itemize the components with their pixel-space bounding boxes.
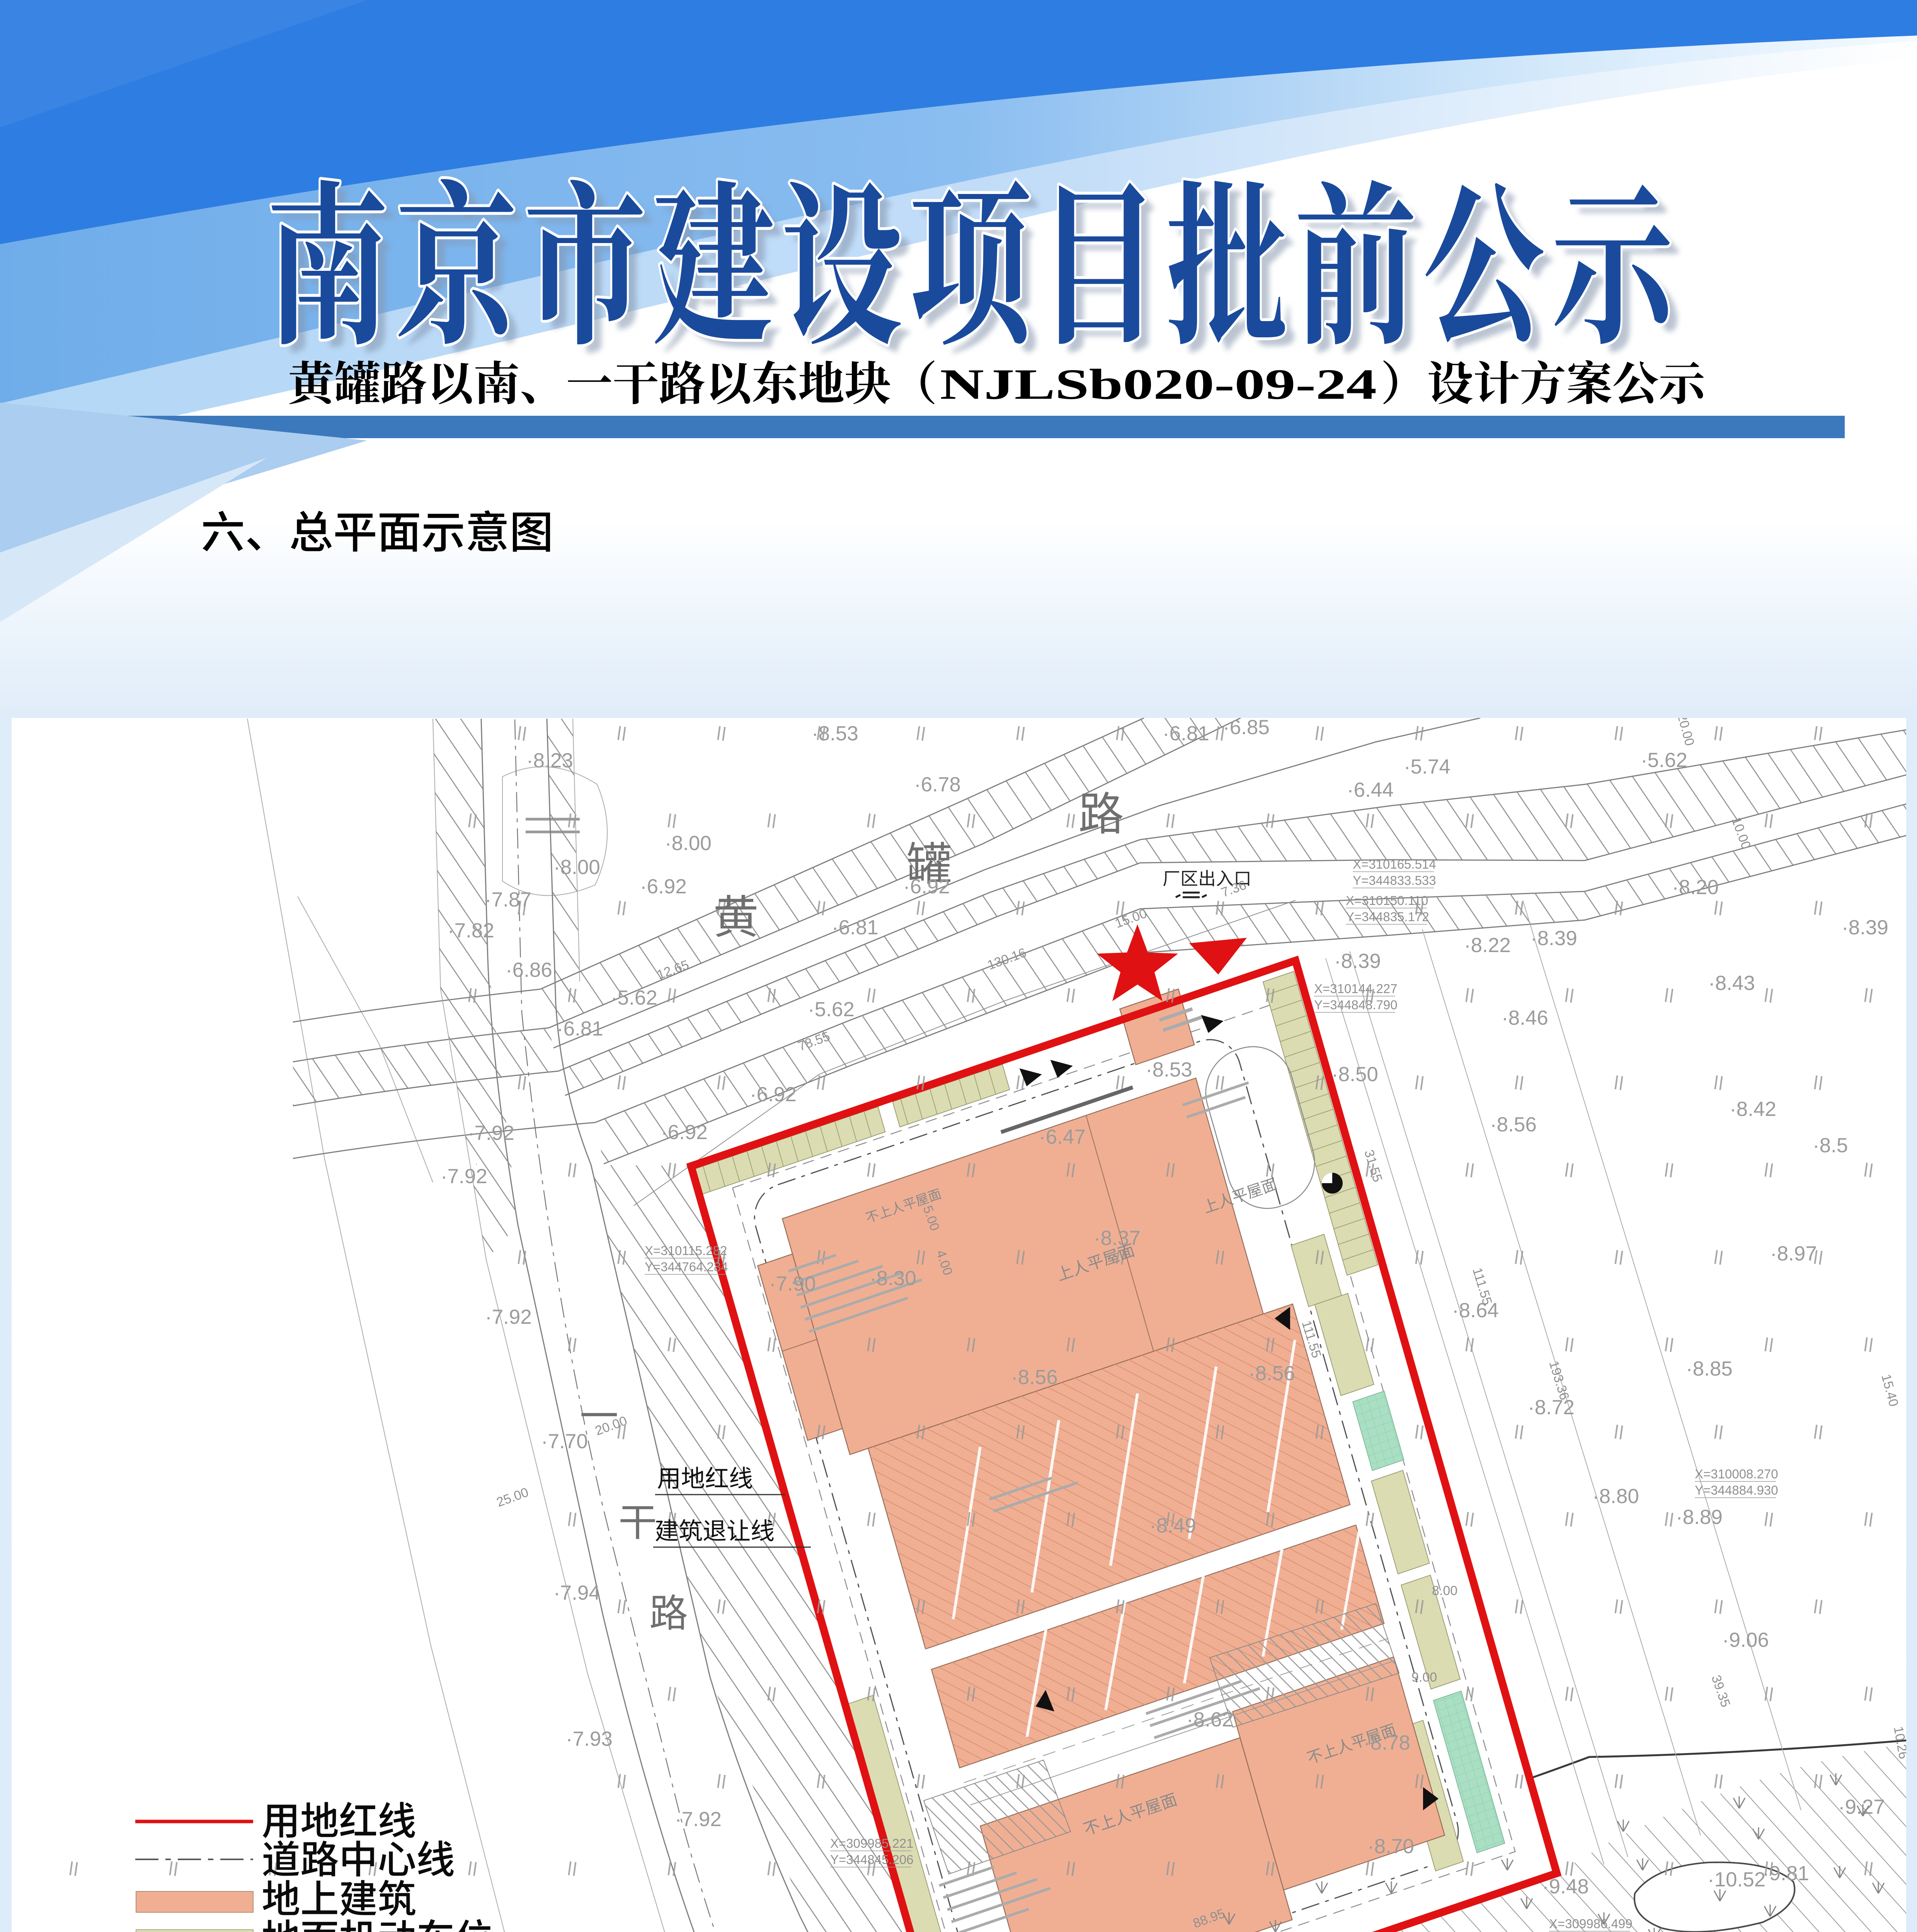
svg-text:8.00: 8.00: [1432, 1583, 1457, 1598]
svg-text:·5.74: ·5.74: [1404, 755, 1451, 778]
svg-text:·6.92: ·6.92: [661, 1121, 708, 1144]
svg-text:·8.5: ·8.5: [1813, 1134, 1848, 1157]
svg-text:Y=344845.206: Y=344845.206: [830, 1852, 914, 1867]
svg-text:·9.27: ·9.27: [1838, 1796, 1885, 1818]
svg-text:·8.97: ·8.97: [1770, 1242, 1817, 1265]
svg-text:·8.70: ·8.70: [1367, 1835, 1414, 1858]
svg-text:·8.89: ·8.89: [1676, 1506, 1723, 1529]
svg-text:·6.81: ·6.81: [832, 916, 878, 939]
svg-text:·9.06: ·9.06: [1722, 1629, 1769, 1651]
svg-text:·8.00: ·8.00: [665, 832, 712, 855]
svg-text:X=309986.499: X=309986.499: [1549, 1917, 1633, 1931]
svg-text:·7.92: ·7.92: [675, 1808, 722, 1831]
svg-text:·8.62: ·8.62: [1187, 1708, 1233, 1731]
svg-text:·6.81: ·6.81: [1163, 722, 1209, 745]
svg-text:·8.43: ·8.43: [1708, 972, 1755, 995]
svg-text:·8.80: ·8.80: [1592, 1485, 1639, 1508]
svg-text:·6.92: ·6.92: [640, 875, 687, 898]
svg-text:·5.62: ·5.62: [808, 998, 855, 1021]
svg-text:·7.82: ·7.82: [448, 919, 494, 942]
svg-text:·6.92: ·6.92: [750, 1083, 797, 1106]
svg-text:Y=344884.930: Y=344884.930: [1695, 1483, 1778, 1497]
svg-text:·6.78: ·6.78: [914, 773, 961, 796]
svg-text:·8.46: ·8.46: [1502, 1007, 1548, 1029]
svg-text:·10.52: ·10.52: [1708, 1868, 1765, 1891]
svg-text:·8.23: ·8.23: [526, 749, 573, 772]
svg-text:9.00: 9.00: [1411, 1670, 1437, 1685]
svg-text:Y=344833.533: Y=344833.533: [1353, 873, 1436, 888]
svg-text:·6.92: ·6.92: [903, 875, 950, 898]
svg-text:·9.48: ·9.48: [1542, 1875, 1589, 1898]
svg-text:·7.92: ·7.92: [441, 1165, 487, 1188]
svg-text:·7.92: ·7.92: [468, 1122, 514, 1145]
svg-text:·7.94: ·7.94: [553, 1582, 600, 1604]
svg-text:·6.85: ·6.85: [1223, 716, 1270, 739]
svg-text:Y=344848.790: Y=344848.790: [1314, 998, 1398, 1012]
svg-text:·8.56: ·8.56: [1490, 1113, 1537, 1136]
svg-text:X=309985.221: X=309985.221: [830, 1836, 914, 1850]
svg-text:Y=344835.172: Y=344835.172: [1346, 910, 1429, 924]
svg-text:X=310144.227: X=310144.227: [1314, 981, 1398, 996]
svg-text:·8.53: ·8.53: [812, 722, 858, 745]
svg-text:X=310008.270: X=310008.270: [1695, 1467, 1778, 1481]
svg-text:·6.86: ·6.86: [506, 959, 552, 981]
svg-text:·6.47: ·6.47: [1039, 1126, 1086, 1148]
svg-text:·8.85: ·8.85: [1686, 1357, 1733, 1380]
svg-text:·8.30: ·8.30: [870, 1267, 916, 1290]
svg-text:·6.44: ·6.44: [1347, 779, 1394, 801]
svg-text:·7.90: ·7.90: [769, 1272, 816, 1295]
svg-text:·8.49: ·8.49: [1149, 1514, 1196, 1537]
svg-text:·8.42: ·8.42: [1730, 1098, 1776, 1121]
svg-text:·8.20: ·8.20: [1672, 876, 1719, 899]
svg-text:·5.62: ·5.62: [1641, 749, 1687, 772]
svg-text:·8.53: ·8.53: [1146, 1058, 1192, 1081]
svg-text:·8.72: ·8.72: [1528, 1396, 1575, 1419]
svg-text:·8.56: ·8.56: [1248, 1362, 1295, 1385]
svg-text:·8.39: ·8.39: [1531, 927, 1577, 950]
svg-text:·8.39: ·8.39: [1842, 916, 1888, 939]
svg-text:·7.92: ·7.92: [485, 1306, 532, 1328]
svg-text:·6.81: ·6.81: [557, 1017, 603, 1040]
svg-text:X=310150.110: X=310150.110: [1346, 893, 1428, 908]
svg-text:·8.00: ·8.00: [553, 856, 600, 879]
svg-text:X=310165.514: X=310165.514: [1353, 857, 1436, 871]
svg-text:·8.22: ·8.22: [1464, 934, 1511, 957]
svg-text:Y=344764.284: Y=344764.284: [645, 1260, 728, 1274]
svg-text:·8.50: ·8.50: [1331, 1063, 1378, 1086]
svg-text:·7.87: ·7.87: [485, 888, 531, 911]
svg-text:NJLSb020-09-24: NJLSb020-09-24: [940, 361, 1377, 408]
svg-text:·7.70: ·7.70: [541, 1430, 588, 1453]
svg-text:·8.78: ·8.78: [1364, 1731, 1410, 1754]
svg-text:·9.81: ·9.81: [1762, 1862, 1809, 1885]
svg-text:X=310115.282: X=310115.282: [645, 1243, 727, 1258]
svg-text:·8.37: ·8.37: [1094, 1227, 1141, 1250]
svg-text:·7.93: ·7.93: [566, 1728, 613, 1750]
svg-text:·5.62: ·5.62: [611, 986, 657, 1009]
svg-text:·8.39: ·8.39: [1334, 950, 1381, 973]
svg-text:·8.56: ·8.56: [1011, 1366, 1058, 1389]
